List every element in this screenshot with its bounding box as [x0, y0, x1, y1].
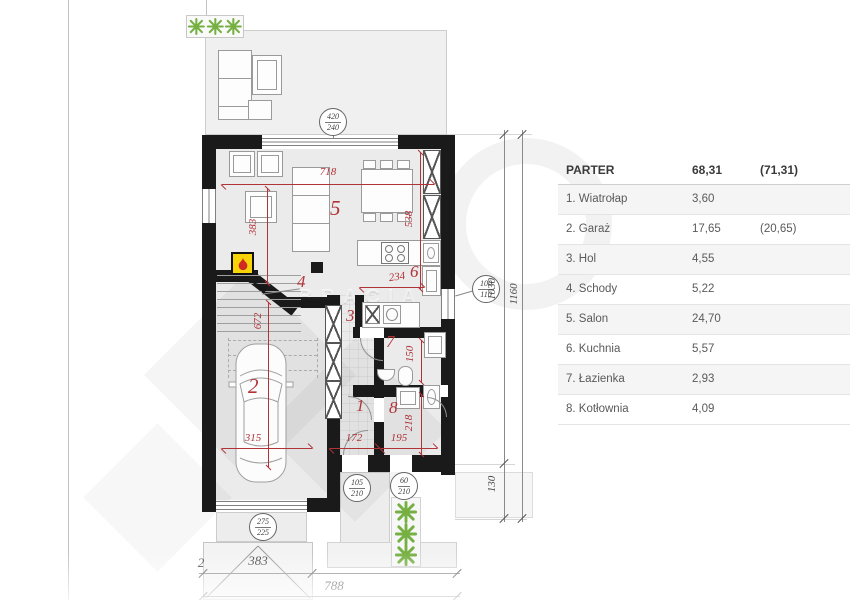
legend-row: 4. Schody 5,22 [558, 275, 850, 305]
room-area: 24,70 [692, 305, 760, 334]
room-area-alt [760, 185, 842, 214]
room-area-alt [760, 395, 842, 424]
legend-row: 8. Kotłownia 4,09 [558, 395, 850, 425]
dim-text: 672 [252, 301, 264, 341]
room-number-1: 1 [356, 396, 365, 416]
plant-icon [206, 17, 225, 36]
room-area: 5,57 [692, 335, 760, 364]
dim-text: 383 [247, 207, 259, 247]
dim-text: 718 [308, 166, 348, 178]
bath-door-opening [360, 327, 384, 338]
room-area: 4,55 [692, 245, 760, 274]
opening-width: 105 [349, 478, 365, 488]
sofa [292, 167, 330, 252]
plant-icon [394, 500, 418, 524]
terrace-sofa [252, 55, 282, 95]
left-window [202, 189, 216, 223]
room-area-alt [760, 245, 842, 274]
opening-size-boiler-door: 60 210 [390, 472, 418, 500]
room-number-7: 7 [386, 332, 395, 352]
opening-size-entry-door: 105 210 [343, 474, 371, 502]
flame-icon [236, 257, 250, 271]
room-name: 3. Hol [558, 245, 692, 274]
dim-text: 172 [340, 432, 368, 444]
entry-door-opening [342, 455, 368, 472]
room-area: 2,93 [692, 365, 760, 394]
chair [397, 160, 410, 169]
legend-row: 5. Salon 24,70 [558, 305, 850, 335]
armchair [257, 151, 283, 177]
plant-icon [187, 17, 206, 36]
terrace-sofa [218, 50, 252, 120]
legend-header: PARTER 68,31 (71,31) [558, 156, 850, 185]
dim-text: 538 [403, 199, 415, 239]
plot-boundary-line [68, 0, 69, 600]
cooktop [381, 242, 409, 264]
side-window [441, 289, 455, 319]
terrace-table [248, 100, 272, 120]
leader-line [455, 291, 473, 297]
car [228, 338, 294, 488]
dim-line-site [203, 596, 460, 597]
stairs-dashed [317, 338, 318, 378]
sink-symbol [365, 305, 380, 324]
dim-text: 150 [404, 334, 416, 374]
room-number-2: 2 [248, 374, 259, 399]
column [311, 262, 323, 273]
dim-line-site [522, 130, 523, 522]
room-area: 5,22 [692, 275, 760, 304]
site-dim-text: 1030 [486, 269, 498, 309]
plant-icon [394, 543, 418, 567]
opening-height: 210 [398, 487, 410, 496]
extension-line [455, 464, 515, 465]
opening-height: 240 [327, 123, 339, 132]
opening-height: 225 [257, 528, 269, 537]
boiler-door-opening [390, 455, 412, 472]
opening-height: 210 [351, 489, 363, 498]
site-dim-text: 383 [240, 553, 276, 569]
chair [380, 213, 393, 222]
dim-text: 218 [403, 403, 415, 443]
armchair [229, 151, 255, 177]
chair [380, 160, 393, 169]
room-area-alt [760, 275, 842, 304]
fireplace [231, 252, 254, 275]
site-dim-text: 2 [196, 555, 206, 571]
chair [363, 160, 376, 169]
dim-line [330, 448, 379, 449]
dim-line [222, 448, 312, 449]
terrace-window [262, 138, 398, 146]
washer [424, 332, 446, 358]
room-name: 5. Salon [558, 305, 692, 334]
legend-title: PARTER [558, 156, 692, 184]
room-number-4: 4 [297, 272, 306, 292]
area-legend-table: PARTER 68,31 (71,31) 1. Wiatrołap 3,60 2… [558, 156, 850, 425]
legend-row: 3. Hol 4,55 [558, 245, 850, 275]
room-area-alt [760, 365, 842, 394]
plant-icon [224, 17, 243, 36]
legend-total-area: 68,31 [692, 156, 760, 184]
hall-door-opening [374, 398, 384, 422]
room-number-8: 8 [389, 398, 398, 418]
hob-symbol [383, 305, 401, 324]
dim-line [420, 152, 421, 290]
garage-door [216, 501, 307, 510]
room-name: 6. Kuchnia [558, 335, 692, 364]
room-area: 3,60 [692, 185, 760, 214]
shaft-box [325, 305, 342, 343]
chair [363, 213, 376, 222]
opening-width: 420 [325, 112, 341, 122]
opening-width: 60 [398, 476, 410, 486]
dim-text: 315 [237, 432, 269, 444]
kitchen-sink [423, 243, 439, 263]
room-name: 7. Łazienka [558, 365, 692, 394]
driveway-marking [203, 542, 313, 600]
room-area-alt [760, 335, 842, 364]
room-number-3: 3 [346, 306, 355, 326]
site-dim-text: 130 [486, 464, 498, 504]
room-area-alt [760, 305, 842, 334]
room-number-5: 5 [330, 196, 341, 221]
site-dim-text: 1160 [508, 274, 520, 314]
dim-line [267, 188, 268, 284]
room-area-alt: (20,65) [760, 215, 842, 244]
wardrobe-box [423, 150, 441, 194]
fridge [422, 266, 441, 296]
dim-line [421, 394, 422, 455]
legend-total-area-alt: (71,31) [760, 156, 842, 184]
dim-line [421, 340, 422, 383]
opening-width: 275 [255, 517, 271, 527]
wardrobe-box [423, 195, 441, 239]
legend-row: 1. Wiatrołap 3,60 [558, 185, 850, 215]
room-area: 4,09 [692, 395, 760, 424]
floor-plan-page: BRACIA [0, 0, 860, 600]
room-area: 17,65 [692, 215, 760, 244]
room-name: 1. Wiatrołap [558, 185, 692, 214]
legend-row: 2. Garaż 17,65 (20,65) [558, 215, 850, 245]
wall [202, 498, 216, 512]
extension-line [455, 519, 527, 520]
room-name: 8. Kotłownia [558, 395, 692, 424]
dim-line-site [199, 573, 460, 574]
wall [307, 498, 327, 512]
plant-box [186, 15, 244, 38]
room-number-6: 6 [410, 262, 419, 282]
shaft-box [325, 343, 342, 381]
room-name: 2. Garaż [558, 215, 692, 244]
dim-line [381, 448, 437, 449]
legend-row: 7. Łazienka 2,93 [558, 365, 850, 395]
legend-row: 6. Kuchnia 5,57 [558, 335, 850, 365]
dim-line [360, 287, 424, 288]
opening-size-terrace-door: 420 240 [319, 108, 347, 136]
room-name: 4. Schody [558, 275, 692, 304]
dim-line [222, 184, 434, 185]
opening-size-garage-door: 275 225 [249, 513, 277, 541]
shaft-box [325, 381, 342, 419]
site-dim-text: 788 [316, 578, 352, 594]
